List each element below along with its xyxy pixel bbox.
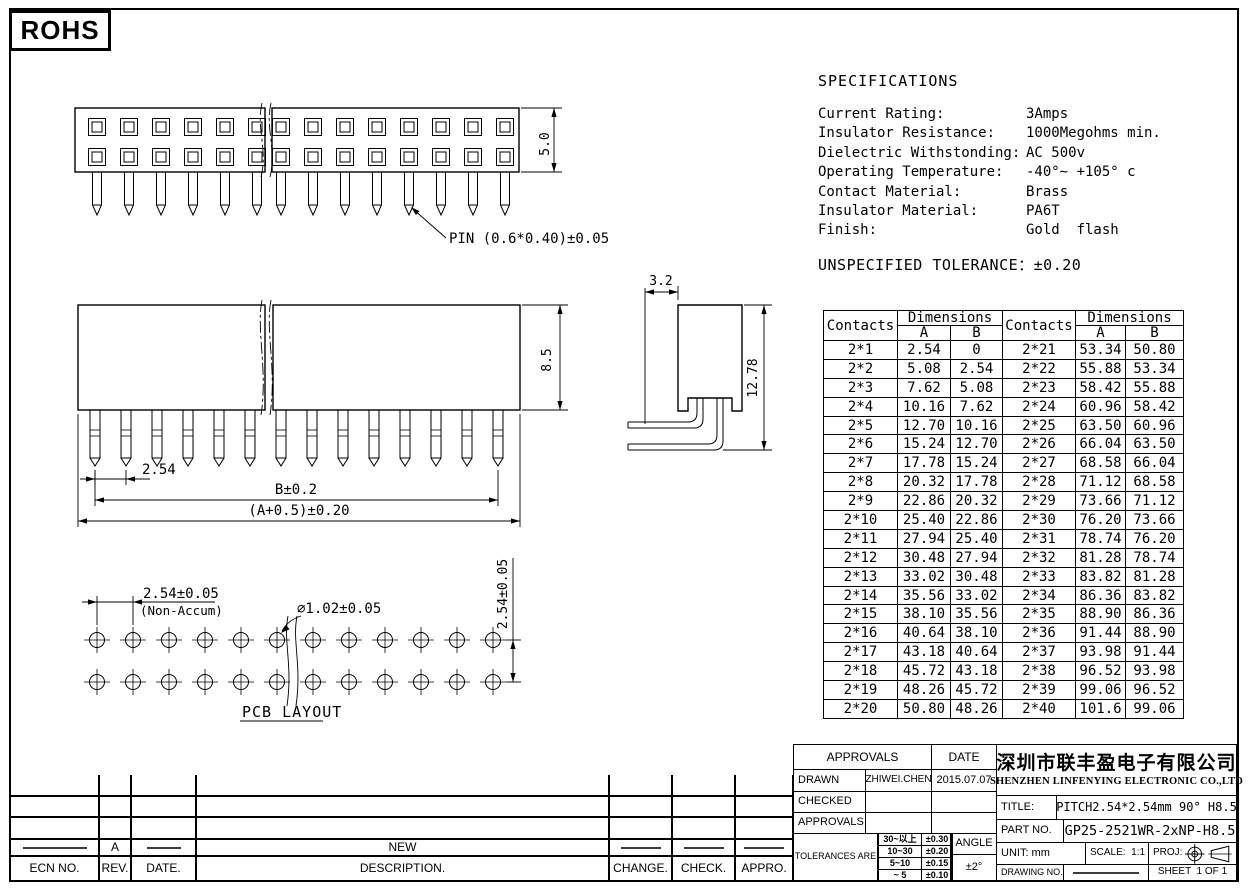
pcb-pitch-note-label: (Non-Accum) [140,603,223,618]
revision-cell [672,775,735,796]
table-row: 2*615.2412.702*2666.0463.50 [824,435,1184,454]
cell-right-b: 53.34 [1126,359,1184,378]
revision-cell [131,817,196,839]
cell-left-contacts: 2*12 [824,548,898,567]
revision-header-cell: ECN NO. [10,856,99,881]
cell-left-b: 35.56 [951,605,1003,624]
cell-left-b: 40.64 [951,643,1003,662]
cell-left-contacts: 2*6 [824,435,898,454]
cell-left-b: 5.08 [951,378,1003,397]
spec-row: Insulator Material:PA6T [818,202,1243,221]
cell-right-contacts: 2*28 [1003,473,1076,492]
cell-left-contacts: 2*4 [824,397,898,416]
revision-cell [131,775,196,796]
spec-label: Contact Material: [818,183,1026,202]
cell-left-contacts: 2*11 [824,529,898,548]
spec-label: Operating Temperature: [818,163,1026,182]
checked-date [931,791,997,813]
col-contacts: Contacts [1003,311,1076,341]
pin-dim-label: PIN (0.6*0.40)±0.05 [449,231,609,247]
tolerance-range: ~ 5 [878,869,922,882]
cell-left-a: 50.80 [898,699,951,718]
spec-value: Brass [1026,183,1068,202]
cell-left-a: 40.64 [898,624,951,643]
cell-right-a: 58.42 [1076,378,1126,397]
title-value: PITCH2.54*2.54mm 90° H8.5 [1056,795,1237,820]
cell-right-b: 73.66 [1126,511,1184,530]
cell-right-b: 58.42 [1126,397,1184,416]
cell-left-b: 25.40 [951,529,1003,548]
cell-right-contacts: 2*27 [1003,454,1076,473]
col-b: B [951,326,1003,341]
cell-left-a: 48.26 [898,681,951,700]
table-row: 2*37.625.082*2358.4255.88 [824,378,1184,397]
pcb-row-pitch-dim-label: 2.54±0.05 [496,559,511,629]
cell-left-contacts: 2*8 [824,473,898,492]
revision-cell [10,839,99,856]
tolerances-label: TOLERANCES ARE [793,833,878,881]
revision-cell [735,775,793,796]
cell-left-a: 7.62 [898,378,951,397]
approvals-header: APPROVALS [793,744,932,770]
scale-cell: SCALE: 1:1 [1085,842,1149,865]
cell-left-contacts: 2*1 [824,341,898,360]
spec-value: PA6T [1026,202,1060,221]
cell-left-b: 22.86 [951,511,1003,530]
pcb-hole-dim-label: ∅1.02±0.05 [297,601,381,617]
cell-left-a: 35.56 [898,586,951,605]
placeholder-dash [744,847,784,849]
front-view-height-dim-label: 8.5 [540,348,555,371]
table-row: 2*1640.6438.102*3691.4488.90 [824,624,1184,643]
revision-header-cell: DESCRIPTION. [196,856,609,881]
table-row: 2*2050.8048.262*40101.699.06 [824,699,1184,718]
cell-right-contacts: 2*22 [1003,359,1076,378]
revision-cell [735,817,793,839]
spec-label: Current Rating: [818,105,1026,124]
spec-row: Dielectric Withstonding:AC 500v [818,144,1243,163]
cell-left-contacts: 2*5 [824,416,898,435]
cell-right-a: 91.44 [1076,624,1126,643]
cell-left-b: 12.70 [951,435,1003,454]
drawingno-dash-cell [1063,864,1149,881]
spec-row: Finish:Gold flash [818,221,1243,240]
cell-left-b: 2.54 [951,359,1003,378]
table-row: 2*820.3217.782*2871.1268.58 [824,473,1184,492]
date-header: DATE [931,744,997,770]
cell-right-contacts: 2*40 [1003,699,1076,718]
table-row: 2*922.8620.322*2973.6671.12 [824,492,1184,511]
rohs-badge: ROHS [9,10,111,51]
table-row: 2*1538.1035.562*3588.9086.36 [824,605,1184,624]
revision-header-cell: CHECK. [672,856,735,881]
title-label: TITLE: [996,795,1057,820]
dimensions-table-header: Contacts Dimensions Contacts Dimensions … [824,311,1184,341]
table-row: 2*1025.4022.862*3076.2073.66 [824,511,1184,530]
cell-right-b: 50.80 [1126,341,1184,360]
side-view-depth-dim-label: 3.2 [649,274,672,289]
spec-label: Insulator Material: [818,202,1026,221]
cell-left-b: 0 [951,341,1003,360]
table-row: 2*25.082.542*2255.8853.34 [824,359,1184,378]
cell-right-a: 55.88 [1076,359,1126,378]
cell-left-b: 43.18 [951,662,1003,681]
side-view-height-dim-label: 12.78 [746,358,761,397]
dimension-labels: PIN (0.6*0.40)±0.05 5.0 8.5 2.54 B±0.2 (… [140,132,761,721]
cell-left-contacts: 2*20 [824,699,898,718]
cell-left-b: 17.78 [951,473,1003,492]
specifications-list: Current Rating:3AmpsInsulator Resistance… [818,105,1243,241]
cell-left-contacts: 2*10 [824,511,898,530]
cell-right-b: 91.44 [1126,643,1184,662]
placeholder-dash [621,847,661,849]
drawing-sheet: PIN (0.6*0.40)±0.05 5.0 8.5 2.54 B±0.2 (… [0,0,1248,889]
cell-left-contacts: 2*2 [824,359,898,378]
col-dimensions: Dimensions [1076,311,1184,326]
revision-cell [10,775,99,796]
table-row: 2*1743.1840.642*3793.9891.44 [824,643,1184,662]
revision-cell: NEW [196,839,609,856]
cell-left-a: 22.86 [898,492,951,511]
cell-right-a: 101.6 [1076,699,1126,718]
revision-cell [131,839,196,856]
cell-left-b: 10.16 [951,416,1003,435]
spec-label: Dielectric Withstonding: [818,144,1026,163]
table-row: 2*1948.2645.722*3999.0696.52 [824,681,1184,700]
cell-right-contacts: 2*32 [1003,548,1076,567]
revision-cell [735,839,793,856]
cell-right-b: 81.28 [1126,567,1184,586]
cell-left-a: 27.94 [898,529,951,548]
cell-left-a: 17.78 [898,454,951,473]
pcb-layout-caption: PCB LAYOUT [242,703,342,721]
revision-cell [672,839,735,856]
revision-cell [196,817,609,839]
cell-right-contacts: 2*35 [1003,605,1076,624]
revision-header-cell: DATE. [131,856,196,881]
cell-right-a: 66.04 [1076,435,1126,454]
pcb-layout [84,616,506,706]
cell-left-contacts: 2*7 [824,454,898,473]
top-view [75,103,519,215]
cell-right-b: 60.96 [1126,416,1184,435]
cell-left-a: 10.16 [898,397,951,416]
checked-name [865,791,932,813]
cell-right-contacts: 2*24 [1003,397,1076,416]
cell-left-b: 45.72 [951,681,1003,700]
cell-left-a: 45.72 [898,662,951,681]
cell-right-b: 76.20 [1126,529,1184,548]
tolerance-subtable: 30~以上±0.3010~30±0.205~10±0.15~ 5±0.10 [878,833,951,881]
first-angle-projection-icon [1185,844,1236,864]
spec-value: Gold flash [1026,221,1119,240]
cell-left-b: 20.32 [951,492,1003,511]
drawn-label: DRAWN [793,769,866,792]
cell-right-b: 99.06 [1126,699,1184,718]
spec-label: Finish: [818,221,1026,240]
cell-right-b: 66.04 [1126,454,1184,473]
cell-right-a: 60.96 [1076,397,1126,416]
col-b: B [1126,326,1184,341]
spec-value: AC 500v [1026,144,1085,163]
approved-name [865,812,932,834]
cell-right-a: 71.12 [1076,473,1126,492]
cell-right-contacts: 2*38 [1003,662,1076,681]
cell-left-b: 27.94 [951,548,1003,567]
table-row: 2*1127.9425.402*3178.7476.20 [824,529,1184,548]
placeholder-dash [1073,872,1139,874]
table-row: 2*1333.0230.482*3383.8281.28 [824,567,1184,586]
cell-left-a: 33.02 [898,567,951,586]
cell-right-contacts: 2*21 [1003,341,1076,360]
placeholder-dash [23,847,87,849]
angle-label: ANGLE [951,833,997,855]
cell-right-a: 96.52 [1076,662,1126,681]
cell-left-b: 38.10 [951,624,1003,643]
revision-header-cell: CHANGE. [609,856,672,881]
company-name-cn: 深圳市联丰盈电子有限公司 [997,752,1237,776]
cell-right-a: 86.36 [1076,586,1126,605]
drawingno-label: DRAWING NO. [996,864,1064,881]
revision-cell [735,796,793,817]
revision-cell [99,796,131,817]
cell-left-a: 30.48 [898,548,951,567]
cell-left-b: 15.24 [951,454,1003,473]
cell-right-a: 88.90 [1076,605,1126,624]
cell-left-a: 15.24 [898,435,951,454]
revision-cell [609,817,672,839]
proj-label: PROJ: [1153,848,1182,859]
cell-left-a: 43.18 [898,643,951,662]
revision-cell [10,796,99,817]
front-view-pitch-dim-label: 2.54 [142,462,176,478]
spec-row: Contact Material:Brass [818,183,1243,202]
sheet-cell: SHEET 1 OF 1 [1148,864,1237,881]
revision-cell [99,775,131,796]
spec-row: Current Rating:3Amps [818,105,1243,124]
table-row: 2*1435.5633.022*3486.3683.82 [824,586,1184,605]
cell-left-contacts: 2*15 [824,605,898,624]
cell-right-b: 86.36 [1126,605,1184,624]
cell-right-contacts: 2*23 [1003,378,1076,397]
revision-header-cell: REV. [99,856,131,881]
cell-left-a: 5.08 [898,359,951,378]
revision-cell [10,817,99,839]
cell-right-contacts: 2*37 [1003,643,1076,662]
table-row: 2*1845.7243.182*3896.5293.98 [824,662,1184,681]
cell-right-contacts: 2*36 [1003,624,1076,643]
cell-left-a: 38.10 [898,605,951,624]
cell-right-contacts: 2*31 [1003,529,1076,548]
cell-right-a: 68.58 [1076,454,1126,473]
cell-right-b: 96.52 [1126,681,1184,700]
cell-right-a: 76.20 [1076,511,1126,530]
cell-left-b: 7.62 [951,397,1003,416]
cell-left-b: 30.48 [951,567,1003,586]
cell-right-b: 78.74 [1126,548,1184,567]
cell-right-b: 71.12 [1126,492,1184,511]
col-a: A [898,326,951,341]
cell-right-b: 83.82 [1126,586,1184,605]
front-view-b-dim-label: B±0.2 [275,482,317,498]
company-cell: 深圳市联丰盈电子有限公司SHENZHEN LINFENYING ELECTRON… [996,744,1237,796]
table-row: 2*1230.4827.942*3281.2878.74 [824,548,1184,567]
cell-right-a: 83.82 [1076,567,1126,586]
revision-cell [99,817,131,839]
table-row: 2*410.167.622*2460.9658.42 [824,397,1184,416]
table-row: 2*512.7010.162*2563.5060.96 [824,416,1184,435]
part-value: GP25-2521WR-2xNP-H8.5 [1063,819,1237,843]
pcb-pitch-dim-label: 2.54±0.05 [143,586,219,602]
drawn-name: ZHIWEI.CHEN [865,769,932,792]
revision-cell [131,796,196,817]
revision-cell [609,775,672,796]
specifications-title: SPECIFICATIONS [818,72,1243,90]
cell-right-contacts: 2*26 [1003,435,1076,454]
cell-left-contacts: 2*16 [824,624,898,643]
cell-left-b: 33.02 [951,586,1003,605]
cell-right-a: 81.28 [1076,548,1126,567]
cell-left-contacts: 2*17 [824,643,898,662]
revision-cell: A [99,839,131,856]
placeholder-dash [684,847,724,849]
angle-value: ±2° [951,854,997,881]
cell-left-a: 20.32 [898,473,951,492]
cell-left-a: 25.40 [898,511,951,530]
revision-cell [196,796,609,817]
front-view [78,300,520,466]
cell-right-contacts: 2*39 [1003,681,1076,700]
revision-cell [609,839,672,856]
proj-cell: PROJ: [1148,842,1237,865]
cell-right-contacts: 2*30 [1003,511,1076,530]
cell-right-a: 78.74 [1076,529,1126,548]
pcb-layout-dims [82,558,521,721]
revision-cell [672,817,735,839]
cell-right-b: 63.50 [1126,435,1184,454]
tolerance-value: ±0.10 [921,869,953,882]
revision-cell [609,796,672,817]
cell-right-a: 63.50 [1076,416,1126,435]
cell-left-contacts: 2*14 [824,586,898,605]
unspecified-tolerance-note: UNSPECIFIED TOLERANCE：±0.20 [818,254,1243,275]
cell-right-contacts: 2*25 [1003,416,1076,435]
spec-row: Insulator Resistance:1000Megohms min. [818,124,1243,143]
cell-right-contacts: 2*33 [1003,567,1076,586]
revision-header-cell: APPRO. [735,856,793,881]
col-a: A [1076,326,1126,341]
front-view-a-dim-label: (A+0.5)±0.20 [248,503,349,519]
approved-label: APPROVALS [793,812,866,834]
cell-right-a: 73.66 [1076,492,1126,511]
revision-cell [672,796,735,817]
cell-right-b: 93.98 [1126,662,1184,681]
cell-right-b: 68.58 [1126,473,1184,492]
approved-date [931,812,997,834]
col-contacts: Contacts [824,311,898,341]
cell-left-contacts: 2*9 [824,492,898,511]
cell-right-b: 55.88 [1126,378,1184,397]
cell-left-contacts: 2*19 [824,681,898,700]
company-name-en: SHENZHEN LINFENYING ELECTRONIC CO.,LTD [990,776,1243,787]
revision-cell [196,775,609,796]
drawn-date: 2015.07.07 [931,769,997,792]
spec-value: -40°∼ +105° c [1026,163,1136,182]
spec-value: 1000Megohms min. [1026,124,1161,143]
unit-cell: UNIT: mm [996,842,1086,865]
table-row: 2*12.5402*2153.3450.80 [824,341,1184,360]
cell-left-a: 12.70 [898,416,951,435]
cell-right-a: 99.06 [1076,681,1126,700]
col-dimensions: Dimensions [898,311,1003,326]
cell-right-b: 88.90 [1126,624,1184,643]
cell-right-a: 93.98 [1076,643,1126,662]
specifications: SPECIFICATIONS Current Rating:3AmpsInsul… [818,72,1243,275]
spec-row: Operating Temperature:-40°∼ +105° c [818,163,1243,182]
spec-value: 3Amps [1026,105,1068,124]
cell-left-contacts: 2*3 [824,378,898,397]
cell-left-contacts: 2*18 [824,662,898,681]
cell-left-b: 48.26 [951,699,1003,718]
table-row: 2*717.7815.242*2768.5866.04 [824,454,1184,473]
cell-right-a: 53.34 [1076,341,1126,360]
cell-right-contacts: 2*29 [1003,492,1076,511]
cell-left-contacts: 2*13 [824,567,898,586]
cell-left-a: 2.54 [898,341,951,360]
dimensions-table: Contacts Dimensions Contacts Dimensions … [823,310,1184,719]
spec-label: Insulator Resistance: [818,124,1026,143]
placeholder-dash [147,847,181,849]
top-view-height-dim-label: 5.0 [538,132,553,155]
checked-label: CHECKED [793,791,866,813]
part-label: PART NO. [996,819,1064,843]
cell-right-contacts: 2*34 [1003,586,1076,605]
